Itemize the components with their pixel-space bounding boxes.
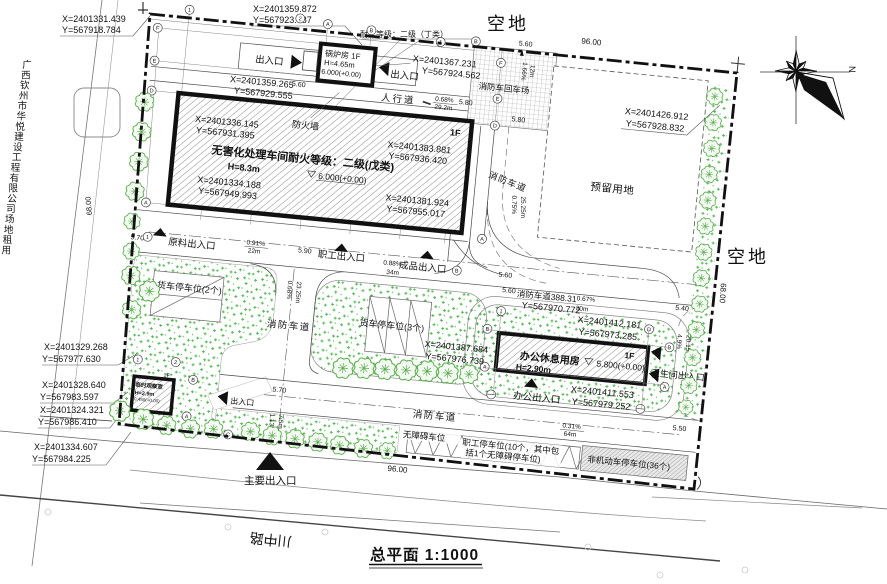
svg-text:华: 华: [16, 111, 26, 123]
svg-text:X=2401324.321: X=2401324.321: [40, 405, 104, 415]
svg-text:2: 2: [174, 360, 178, 366]
svg-text:22m: 22m: [247, 247, 260, 255]
svg-text:0.68%: 0.68%: [285, 280, 293, 299]
svg-text:5.60: 5.60: [498, 272, 512, 280]
svg-text:25.25m: 25.25m: [519, 196, 526, 218]
svg-text:1: 1: [188, 8, 192, 14]
svg-text:5.80: 5.80: [511, 116, 525, 124]
svg-text:5.60: 5.60: [518, 41, 532, 49]
svg-text:1: 1: [136, 357, 140, 363]
svg-text:钦: 钦: [20, 80, 30, 92]
svg-text:建: 建: [14, 131, 24, 143]
svg-text:5.50: 5.50: [672, 425, 686, 433]
svg-text:1F: 1F: [163, 373, 171, 380]
svg-text:主要出入口: 主要出入口: [244, 474, 297, 487]
svg-text:23.25m: 23.25m: [294, 281, 302, 303]
svg-text:悦: 悦: [15, 121, 25, 133]
svg-text:68.00: 68.00: [718, 283, 728, 304]
svg-text:Y=567977.630: Y=567977.630: [42, 354, 101, 364]
svg-text:5.60: 5.60: [502, 287, 516, 295]
svg-text:D: D: [493, 123, 498, 129]
svg-text:5.60: 5.60: [292, 81, 306, 89]
svg-text:1F: 1F: [450, 127, 462, 138]
svg-text:空地: 空地: [727, 247, 769, 267]
svg-text:广: 广: [22, 59, 32, 71]
svg-text:X=2401331.439: X=2401331.439: [62, 14, 126, 24]
svg-text:2: 2: [298, 16, 302, 22]
svg-text:空地: 空地: [487, 14, 529, 34]
svg-text:68.00: 68.00: [83, 196, 94, 215]
svg-text:0.75%: 0.75%: [510, 196, 517, 215]
svg-text:5.80: 5.80: [459, 99, 473, 107]
svg-text:Y=567986.410: Y=567986.410: [38, 417, 97, 427]
svg-text:地: 地: [4, 224, 14, 236]
svg-text:X=2401328.640: X=2401328.640: [42, 380, 106, 390]
svg-text:Y=567918.784: Y=567918.784: [62, 25, 121, 35]
svg-text:X=2401359.872: X=2401359.872: [253, 4, 317, 14]
svg-text:用: 用: [2, 245, 12, 256]
svg-text:5.40: 5.40: [675, 305, 689, 313]
svg-text:5.90: 5.90: [298, 247, 312, 255]
svg-text:X=2401334.607: X=2401334.607: [34, 442, 98, 452]
svg-text:30m: 30m: [575, 305, 588, 313]
svg-text:34m: 34m: [386, 269, 399, 277]
svg-text:有: 有: [10, 172, 20, 184]
svg-text:5.70: 5.70: [272, 386, 286, 394]
svg-text:Y=567983.597: Y=567983.597: [40, 392, 99, 402]
svg-text:7.5m: 7.5m: [276, 414, 284, 429]
svg-text:4.9%: 4.9%: [675, 334, 683, 349]
svg-text:1F: 1F: [624, 350, 635, 361]
svg-text:总平面 1:1000: 总平面 1:1000: [370, 545, 479, 564]
svg-text:64m: 64m: [563, 431, 576, 439]
svg-text:市: 市: [18, 100, 28, 112]
svg-text:Y=567984.225: Y=567984.225: [32, 454, 91, 464]
svg-text:租: 租: [3, 234, 13, 246]
svg-text:1: 1: [146, 235, 150, 241]
svg-text:N: N: [847, 66, 857, 73]
svg-text:12m: 12m: [528, 65, 536, 78]
svg-text:X=2401329.268: X=2401329.268: [44, 342, 108, 352]
